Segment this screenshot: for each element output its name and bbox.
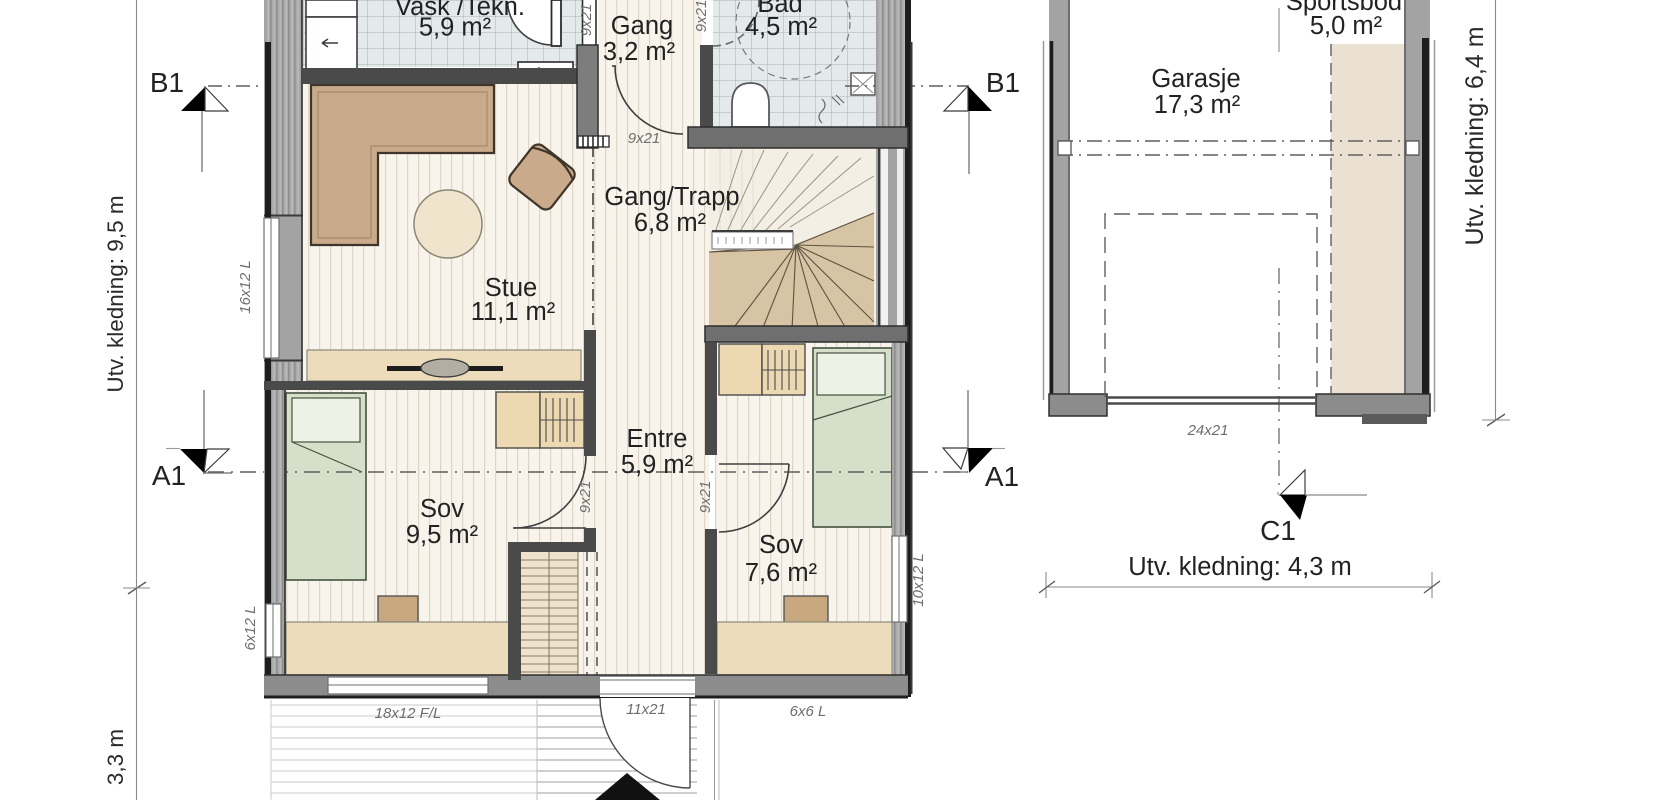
svg-text:10x12 L: 10x12 L (910, 553, 927, 606)
svg-text:11x21: 11x21 (626, 701, 666, 718)
svg-text:6x12 L: 6x12 L (242, 605, 259, 650)
svg-text:6,8 m²: 6,8 m² (634, 209, 706, 237)
svg-text:9x21: 9x21 (697, 481, 714, 514)
svg-text:Sov: Sov (420, 495, 464, 523)
svg-text:7,6 m²: 7,6 m² (745, 559, 817, 587)
svg-text:C1: C1 (1260, 515, 1296, 546)
svg-text:B1: B1 (986, 67, 1020, 98)
svg-text:A1: A1 (152, 460, 186, 491)
svg-text:Utv. kledning: 9,5 m: Utv. kledning: 9,5 m (103, 195, 128, 392)
svg-text:9x21: 9x21 (577, 481, 594, 514)
svg-text:17,3 m²: 17,3 m² (1154, 91, 1240, 119)
svg-text:9x21: 9x21 (693, 0, 710, 32)
svg-text:24x21: 24x21 (1187, 422, 1229, 439)
svg-text:9x21: 9x21 (578, 4, 595, 37)
svg-text:4,5 m²: 4,5 m² (745, 13, 817, 41)
svg-text:5,9 m²: 5,9 m² (621, 451, 693, 479)
svg-text:A1: A1 (985, 461, 1019, 492)
svg-text:Gang/Trapp: Gang/Trapp (604, 183, 739, 211)
svg-text:B1: B1 (150, 67, 184, 98)
svg-text:Entre: Entre (627, 425, 688, 453)
svg-text:11,1 m²: 11,1 m² (471, 298, 556, 326)
svg-text:Utv. kledning: 4,3 m: Utv. kledning: 4,3 m (1128, 553, 1351, 581)
svg-text:Sov: Sov (759, 531, 803, 559)
svg-text:5,9 m²: 5,9 m² (419, 14, 491, 42)
svg-text:3,2 m²: 3,2 m² (603, 38, 675, 66)
svg-text:9,5 m²: 9,5 m² (406, 521, 478, 549)
svg-text:18x12 F/L: 18x12 F/L (375, 705, 442, 722)
svg-text:6x6 L: 6x6 L (790, 703, 827, 720)
svg-text:3,3 m: 3,3 m (103, 729, 128, 785)
svg-text:Garasje: Garasje (1151, 65, 1240, 93)
svg-text:9x21: 9x21 (628, 130, 661, 147)
svg-text:Utv. kledning: 6,4 m: Utv. kledning: 6,4 m (1461, 26, 1489, 245)
svg-text:5,0 m²: 5,0 m² (1310, 12, 1382, 40)
svg-text:Gang: Gang (611, 12, 673, 40)
svg-text:16x12 L: 16x12 L (237, 260, 254, 313)
